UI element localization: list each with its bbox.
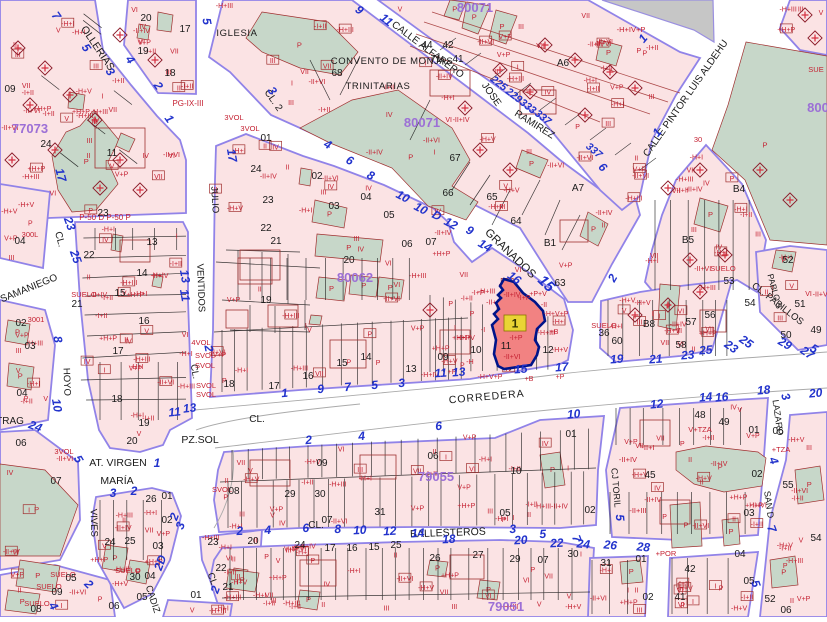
svg-text:01: 01 bbox=[260, 133, 272, 144]
svg-text:SUE: SUE bbox=[808, 65, 823, 74]
svg-text:-H+III: -H+III bbox=[534, 504, 551, 511]
svg-text:V: V bbox=[738, 407, 743, 414]
svg-text:10: 10 bbox=[49, 398, 65, 414]
svg-text:-H+III: -H+III bbox=[22, 174, 39, 181]
svg-text:15: 15 bbox=[514, 362, 529, 377]
svg-text:13: 13 bbox=[452, 365, 467, 380]
svg-text:-H+V: -H+V bbox=[565, 604, 581, 611]
svg-text:01: 01 bbox=[748, 425, 760, 436]
svg-text:-I+II: -I+II bbox=[21, 399, 33, 406]
svg-text:P: P bbox=[297, 41, 302, 50]
svg-text:22: 22 bbox=[260, 223, 272, 234]
svg-text:04: 04 bbox=[734, 549, 746, 560]
svg-text:-H+III: -H+III bbox=[779, 6, 796, 13]
svg-text:05: 05 bbox=[383, 210, 395, 221]
svg-text:63: 63 bbox=[554, 278, 566, 289]
svg-text:14: 14 bbox=[360, 352, 372, 363]
svg-text:V+P: V+P bbox=[610, 85, 624, 92]
svg-text:-II: -II bbox=[541, 302, 547, 309]
svg-text:08: 08 bbox=[30, 604, 42, 615]
svg-text:+H+V: +H+V bbox=[457, 335, 475, 342]
svg-text:-I+II: -I+II bbox=[95, 313, 107, 320]
svg-text:79055: 79055 bbox=[418, 469, 454, 484]
svg-text:77073: 77073 bbox=[12, 121, 48, 136]
svg-text:26: 26 bbox=[145, 494, 157, 505]
svg-text:-H+III: -H+III bbox=[786, 558, 803, 565]
svg-text:-H+V+P: -H+V+P bbox=[544, 311, 569, 318]
svg-text:+H+P: +H+P bbox=[269, 575, 287, 582]
svg-text:-H+I: -H+I bbox=[144, 510, 157, 517]
svg-text:VII: VII bbox=[300, 69, 309, 76]
svg-text:III: III bbox=[487, 509, 493, 516]
svg-text:13: 13 bbox=[182, 400, 197, 415]
svg-text:-I: -I bbox=[481, 327, 485, 334]
svg-text:V: V bbox=[276, 558, 281, 565]
svg-text:SVOL: SVOL bbox=[196, 381, 216, 390]
svg-text:B4: B4 bbox=[733, 184, 746, 195]
svg-text:P: P bbox=[28, 221, 33, 228]
svg-text:I: I bbox=[627, 587, 629, 594]
svg-text:-I+P: -I+P bbox=[509, 335, 522, 342]
svg-text:52: 52 bbox=[764, 594, 776, 605]
svg-text:II: II bbox=[634, 155, 638, 162]
svg-text:-II+VI: -II+VI bbox=[694, 266, 711, 273]
svg-text:23: 23 bbox=[97, 208, 109, 219]
svg-text:MARÍA: MARÍA bbox=[100, 474, 133, 487]
svg-text:-II+I: -II+I bbox=[641, 443, 654, 452]
svg-text:IV: IV bbox=[7, 470, 14, 477]
svg-text:IV: IV bbox=[730, 405, 737, 412]
svg-text:20: 20 bbox=[807, 385, 823, 400]
svg-text:19: 19 bbox=[137, 46, 149, 57]
svg-text:15: 15 bbox=[336, 358, 348, 369]
svg-text:V: V bbox=[270, 512, 275, 519]
svg-text:30: 30 bbox=[567, 549, 579, 560]
svg-text:22: 22 bbox=[215, 563, 227, 574]
svg-text:+TZA: +TZA bbox=[772, 445, 791, 454]
svg-text:21: 21 bbox=[648, 352, 664, 367]
svg-text:24: 24 bbox=[104, 537, 116, 548]
svg-text:3VOL: 3VOL bbox=[224, 113, 243, 122]
svg-text:V+P: V+P bbox=[624, 439, 638, 446]
svg-text:II: II bbox=[286, 164, 290, 171]
svg-text:2: 2 bbox=[130, 484, 138, 498]
svg-text:-I+II: -I+II bbox=[702, 435, 714, 442]
svg-text:09: 09 bbox=[316, 458, 328, 469]
svg-text:VII: VII bbox=[22, 83, 31, 90]
svg-text:VII: VII bbox=[581, 13, 590, 20]
svg-text:26: 26 bbox=[602, 537, 618, 552]
svg-text:1: 1 bbox=[512, 317, 519, 331]
svg-text:V+P: V+P bbox=[15, 332, 29, 339]
svg-text:P: P bbox=[264, 554, 269, 561]
svg-text:III: III bbox=[806, 445, 812, 452]
svg-text:16: 16 bbox=[346, 543, 358, 554]
svg-text:-H+V: -H+V bbox=[76, 89, 92, 96]
svg-text:II: II bbox=[258, 286, 262, 293]
svg-text:02: 02 bbox=[584, 505, 596, 516]
svg-text:10: 10 bbox=[566, 406, 581, 421]
svg-text:VII: VII bbox=[536, 43, 545, 50]
svg-text:3VOL: 3VOL bbox=[240, 124, 259, 133]
svg-text:26: 26 bbox=[429, 553, 441, 564]
svg-text:-H+III: -H+III bbox=[216, 3, 233, 10]
svg-text:-H+I: -H+I bbox=[299, 207, 312, 214]
svg-text:TRINITARIAS: TRINITARIAS bbox=[345, 81, 410, 92]
svg-text:V+P: V+P bbox=[129, 365, 143, 372]
svg-text:-II+VI: -II+VI bbox=[308, 79, 325, 86]
svg-text:31: 31 bbox=[374, 507, 386, 518]
svg-text:01: 01 bbox=[161, 491, 173, 502]
svg-text:P: P bbox=[680, 603, 685, 610]
svg-text:01: 01 bbox=[635, 554, 647, 565]
svg-text:IV: IV bbox=[142, 153, 149, 160]
svg-text:30: 30 bbox=[694, 135, 702, 144]
svg-text:IV: IV bbox=[386, 112, 393, 119]
svg-text:III: III bbox=[451, 604, 457, 611]
svg-text:II: II bbox=[321, 602, 325, 609]
svg-text:II: II bbox=[225, 478, 229, 485]
svg-text:09: 09 bbox=[51, 587, 63, 598]
svg-text:V: V bbox=[799, 537, 804, 544]
svg-text:VI: VI bbox=[805, 291, 812, 298]
svg-text:-II+VI: -II+VI bbox=[23, 108, 40, 115]
svg-text:11: 11 bbox=[501, 341, 512, 352]
svg-text:21: 21 bbox=[71, 299, 83, 310]
svg-text:+P: +P bbox=[556, 374, 565, 381]
svg-text:-H+V: -H+V bbox=[619, 298, 635, 305]
svg-text:+H+P: +H+P bbox=[620, 600, 638, 607]
svg-text:14: 14 bbox=[698, 389, 713, 404]
svg-text:18: 18 bbox=[223, 379, 235, 390]
svg-text:V+P: V+P bbox=[463, 434, 477, 441]
svg-text:5: 5 bbox=[539, 527, 547, 541]
svg-text:06: 06 bbox=[401, 239, 413, 250]
svg-text:I: I bbox=[567, 465, 569, 472]
svg-text:03: 03 bbox=[743, 508, 755, 519]
svg-text:VII: VII bbox=[109, 107, 118, 114]
svg-text:-H+I: -H+I bbox=[219, 544, 232, 551]
svg-text:-I+P: -I+P bbox=[471, 290, 484, 297]
svg-text:P: P bbox=[637, 48, 642, 55]
svg-text:P: P bbox=[470, 311, 475, 318]
svg-text:51: 51 bbox=[794, 299, 806, 310]
svg-text:SUELO: SUELO bbox=[710, 264, 736, 273]
svg-text:41: 41 bbox=[452, 54, 464, 65]
svg-text:25: 25 bbox=[390, 540, 402, 551]
svg-text:-I+II: -I+II bbox=[301, 479, 313, 486]
svg-text:52: 52 bbox=[782, 255, 794, 266]
svg-text:-H+I: -H+I bbox=[102, 227, 115, 234]
svg-text:III: III bbox=[691, 227, 697, 234]
svg-text:01: 01 bbox=[565, 429, 577, 440]
svg-text:VI: VI bbox=[50, 190, 57, 197]
svg-text:20: 20 bbox=[343, 255, 355, 266]
svg-text:04: 04 bbox=[360, 192, 372, 203]
svg-text:V+P: V+P bbox=[115, 172, 129, 179]
svg-text:P: P bbox=[680, 441, 685, 448]
svg-text:IGLESIA: IGLESIA bbox=[216, 28, 257, 39]
svg-text:-I+P: -I+P bbox=[517, 295, 530, 302]
svg-text:V: V bbox=[190, 607, 195, 614]
svg-text:P: P bbox=[34, 505, 39, 514]
svg-text:-II+IV: -II+IV bbox=[260, 174, 277, 181]
svg-text:-I+II: -I+II bbox=[646, 45, 658, 52]
svg-text:II: II bbox=[86, 153, 90, 160]
svg-text:+H+P: +H+P bbox=[730, 494, 748, 501]
svg-text:+B: +B bbox=[550, 329, 559, 336]
svg-text:02: 02 bbox=[311, 171, 323, 182]
svg-text:24: 24 bbox=[294, 540, 306, 551]
svg-text:-II+IV: -II+IV bbox=[686, 186, 703, 193]
svg-text:P: P bbox=[575, 124, 580, 131]
svg-text:80071: 80071 bbox=[404, 115, 440, 130]
svg-text:III: III bbox=[86, 138, 92, 145]
svg-text:P: P bbox=[408, 152, 413, 161]
svg-text:VI: VI bbox=[445, 117, 452, 124]
svg-text:02: 02 bbox=[642, 592, 654, 603]
svg-text:VII: VII bbox=[440, 589, 449, 596]
svg-text:+POR: +POR bbox=[656, 549, 677, 558]
svg-text:SVOL: SVOL bbox=[195, 361, 215, 370]
svg-text:3001: 3001 bbox=[28, 315, 45, 324]
svg-text:-H: -H bbox=[466, 359, 473, 366]
svg-text:15: 15 bbox=[368, 542, 380, 553]
svg-text:V+P: V+P bbox=[411, 505, 425, 512]
svg-text:03: 03 bbox=[24, 341, 36, 352]
svg-text:-H+I: -H+I bbox=[441, 95, 454, 102]
svg-text:07: 07 bbox=[321, 515, 333, 526]
svg-text:IV: IV bbox=[703, 181, 710, 188]
svg-text:17: 17 bbox=[268, 381, 280, 392]
svg-text:VI: VI bbox=[182, 332, 189, 339]
svg-text:13: 13 bbox=[405, 364, 417, 375]
svg-text:-II+IV: -II+IV bbox=[366, 150, 383, 157]
svg-text:P: P bbox=[530, 567, 535, 574]
svg-text:VI: VI bbox=[168, 153, 175, 160]
svg-text:P: P bbox=[98, 596, 103, 603]
svg-text:13: 13 bbox=[146, 237, 158, 248]
svg-text:45: 45 bbox=[644, 470, 656, 481]
svg-text:17: 17 bbox=[555, 359, 571, 374]
svg-text:65: 65 bbox=[486, 192, 498, 203]
svg-text:04: 04 bbox=[16, 388, 28, 399]
svg-text:10: 10 bbox=[353, 523, 367, 538]
svg-text:-II+VI: -II+VI bbox=[423, 138, 440, 145]
svg-text:-II+VI: -II+VI bbox=[547, 163, 564, 170]
svg-text:VI: VI bbox=[394, 282, 401, 289]
svg-text:18: 18 bbox=[164, 68, 176, 79]
svg-text:18: 18 bbox=[756, 382, 771, 397]
svg-text:III: III bbox=[16, 348, 22, 355]
svg-text:B1: B1 bbox=[544, 238, 557, 249]
svg-text:VII: VII bbox=[170, 48, 179, 55]
svg-text:V+P: V+P bbox=[227, 297, 241, 304]
svg-text:71: 71 bbox=[430, 54, 442, 65]
svg-text:VIVES: VIVES bbox=[88, 509, 100, 537]
svg-text:I: I bbox=[305, 323, 307, 330]
svg-text:-II+IV: -II+IV bbox=[711, 461, 728, 468]
svg-text:03: 03 bbox=[152, 541, 164, 552]
svg-text:VI: VI bbox=[338, 446, 345, 453]
svg-text:CL.: CL. bbox=[249, 414, 265, 425]
svg-text:V: V bbox=[56, 27, 61, 34]
svg-text:14: 14 bbox=[411, 526, 425, 541]
svg-text:VII: VII bbox=[459, 272, 468, 279]
svg-text:III: III bbox=[526, 149, 532, 156]
svg-text:-II+IV: -II+IV bbox=[670, 322, 687, 329]
svg-text:42: 42 bbox=[442, 40, 454, 51]
svg-text:3VOL: 3VOL bbox=[54, 447, 73, 456]
svg-text:P: P bbox=[606, 48, 611, 57]
svg-text:P: P bbox=[499, 22, 504, 31]
svg-text:III: III bbox=[354, 236, 360, 243]
svg-text:48: 48 bbox=[694, 410, 706, 421]
svg-text:P: P bbox=[629, 567, 634, 576]
svg-text:68: 68 bbox=[331, 68, 343, 79]
svg-text:PZ.SOL: PZ.SOL bbox=[181, 434, 219, 446]
svg-text:15: 15 bbox=[114, 288, 126, 299]
svg-text:II: II bbox=[688, 457, 692, 464]
svg-text:VI: VI bbox=[385, 260, 392, 267]
svg-text:V: V bbox=[567, 593, 572, 600]
svg-text:P: P bbox=[329, 284, 334, 293]
svg-text:P: P bbox=[529, 159, 534, 168]
svg-text:P: P bbox=[591, 225, 596, 234]
svg-text:IV: IV bbox=[357, 246, 364, 253]
svg-text:P: P bbox=[346, 243, 351, 252]
svg-text:-H+III: -H+III bbox=[676, 176, 693, 183]
svg-text:25: 25 bbox=[124, 536, 136, 547]
svg-text:30: 30 bbox=[314, 489, 326, 500]
svg-text:79051: 79051 bbox=[488, 599, 524, 614]
svg-text:SVOL: SVOL bbox=[196, 390, 216, 399]
svg-text:13: 13 bbox=[177, 269, 193, 285]
svg-text:III: III bbox=[288, 100, 294, 107]
svg-text:-I+II: -I+II bbox=[318, 107, 330, 114]
svg-text:54: 54 bbox=[744, 298, 756, 309]
svg-text:-H+V: -H+V bbox=[112, 581, 128, 588]
svg-text:III: III bbox=[9, 255, 15, 262]
svg-text:8: 8 bbox=[334, 522, 342, 536]
svg-text:16: 16 bbox=[302, 371, 314, 382]
svg-text:V+P: V+P bbox=[559, 262, 573, 269]
svg-text:3: 3 bbox=[110, 486, 117, 500]
svg-text:VI: VI bbox=[131, 7, 138, 14]
svg-text:20: 20 bbox=[513, 533, 528, 548]
svg-text:V+P: V+P bbox=[457, 485, 471, 492]
svg-text:20: 20 bbox=[126, 436, 138, 447]
svg-text:III: III bbox=[239, 512, 245, 519]
svg-text:P: P bbox=[435, 564, 440, 573]
svg-text:11: 11 bbox=[168, 404, 182, 419]
svg-text:+H+P: +H+P bbox=[90, 557, 108, 564]
svg-text:17: 17 bbox=[112, 346, 124, 357]
svg-text:I: I bbox=[434, 149, 436, 156]
svg-text:-H+I: -H+I bbox=[179, 351, 192, 358]
svg-text:17: 17 bbox=[324, 543, 336, 554]
svg-text:I: I bbox=[236, 579, 238, 586]
svg-text:2: 2 bbox=[304, 433, 313, 448]
svg-text:29: 29 bbox=[284, 489, 296, 500]
svg-text:VII: VII bbox=[237, 460, 246, 467]
svg-text:PG-IX-III: PG-IX-III bbox=[172, 99, 203, 108]
svg-text:I: I bbox=[102, 94, 104, 101]
svg-text:07: 07 bbox=[50, 476, 62, 487]
svg-text:A7: A7 bbox=[572, 183, 585, 194]
svg-text:800: 800 bbox=[807, 100, 827, 115]
svg-text:2: 2 bbox=[235, 524, 244, 538]
svg-text:-H+V: -H+V bbox=[552, 347, 568, 354]
svg-text:-H+I: -H+I bbox=[253, 593, 266, 600]
svg-text:II: II bbox=[790, 596, 794, 605]
svg-text:53: 53 bbox=[723, 276, 735, 287]
svg-text:49: 49 bbox=[810, 325, 822, 336]
svg-text:VII: VII bbox=[544, 573, 553, 580]
svg-text:23: 23 bbox=[262, 195, 274, 206]
svg-text:60: 60 bbox=[611, 336, 623, 347]
svg-text:III: III bbox=[649, 94, 655, 101]
svg-text:04: 04 bbox=[144, 571, 156, 582]
svg-text:I: I bbox=[176, 234, 178, 241]
svg-text:V+P: V+P bbox=[797, 596, 811, 603]
svg-text:P: P bbox=[643, 50, 648, 57]
svg-text:16: 16 bbox=[714, 389, 729, 404]
svg-text:VII: VII bbox=[661, 340, 670, 347]
svg-text:-I+II: -I+II bbox=[779, 546, 791, 553]
svg-text:-H+V+P: -H+V+P bbox=[478, 374, 503, 381]
svg-text:+H+P: +H+P bbox=[72, 109, 90, 116]
svg-text:VENTIDOS: VENTIDOS bbox=[194, 263, 207, 312]
svg-text:80062: 80062 bbox=[337, 270, 373, 285]
svg-text:+H+P: +H+P bbox=[441, 572, 459, 579]
svg-text:-H+III: -H+III bbox=[488, 204, 505, 211]
svg-text:-I+II: -I+II bbox=[289, 604, 301, 611]
svg-text:P: P bbox=[708, 210, 713, 219]
svg-text:6: 6 bbox=[302, 521, 310, 535]
svg-text:V+TZA: V+TZA bbox=[688, 425, 712, 434]
svg-text:VII: VII bbox=[656, 436, 665, 443]
svg-text:TRAG: TRAG bbox=[0, 416, 24, 427]
svg-text:II: II bbox=[393, 552, 397, 559]
svg-text:06: 06 bbox=[780, 605, 792, 616]
svg-text:21: 21 bbox=[270, 236, 282, 247]
svg-text:24: 24 bbox=[250, 164, 262, 175]
svg-text:11: 11 bbox=[434, 366, 448, 381]
svg-text:-H+V: -H+V bbox=[18, 202, 34, 209]
svg-text:-H+I: -H+I bbox=[347, 568, 360, 575]
svg-text:AT. VIRGEN: AT. VIRGEN bbox=[89, 457, 147, 469]
svg-text:-II+III: -II+III bbox=[629, 506, 646, 515]
svg-text:18: 18 bbox=[442, 532, 456, 547]
svg-text:VII: VII bbox=[672, 188, 681, 195]
svg-text:+H+P: +H+P bbox=[99, 335, 117, 342]
svg-text:67: 67 bbox=[449, 153, 461, 164]
svg-text:-H+V: -H+V bbox=[1, 208, 17, 215]
svg-text:56: 56 bbox=[704, 310, 716, 321]
svg-text:B8: B8 bbox=[643, 319, 656, 330]
svg-text:23: 23 bbox=[207, 537, 219, 548]
svg-text:22: 22 bbox=[549, 536, 564, 551]
svg-text:-H+V: -H+V bbox=[635, 300, 651, 307]
svg-text:06: 06 bbox=[108, 601, 120, 612]
svg-text:12: 12 bbox=[649, 396, 664, 411]
svg-text:05: 05 bbox=[499, 508, 511, 519]
svg-text:-II+IV: -II+IV bbox=[596, 210, 613, 217]
svg-text:02: 02 bbox=[751, 469, 763, 480]
svg-text:16: 16 bbox=[138, 316, 150, 327]
svg-text:05: 05 bbox=[65, 573, 77, 584]
